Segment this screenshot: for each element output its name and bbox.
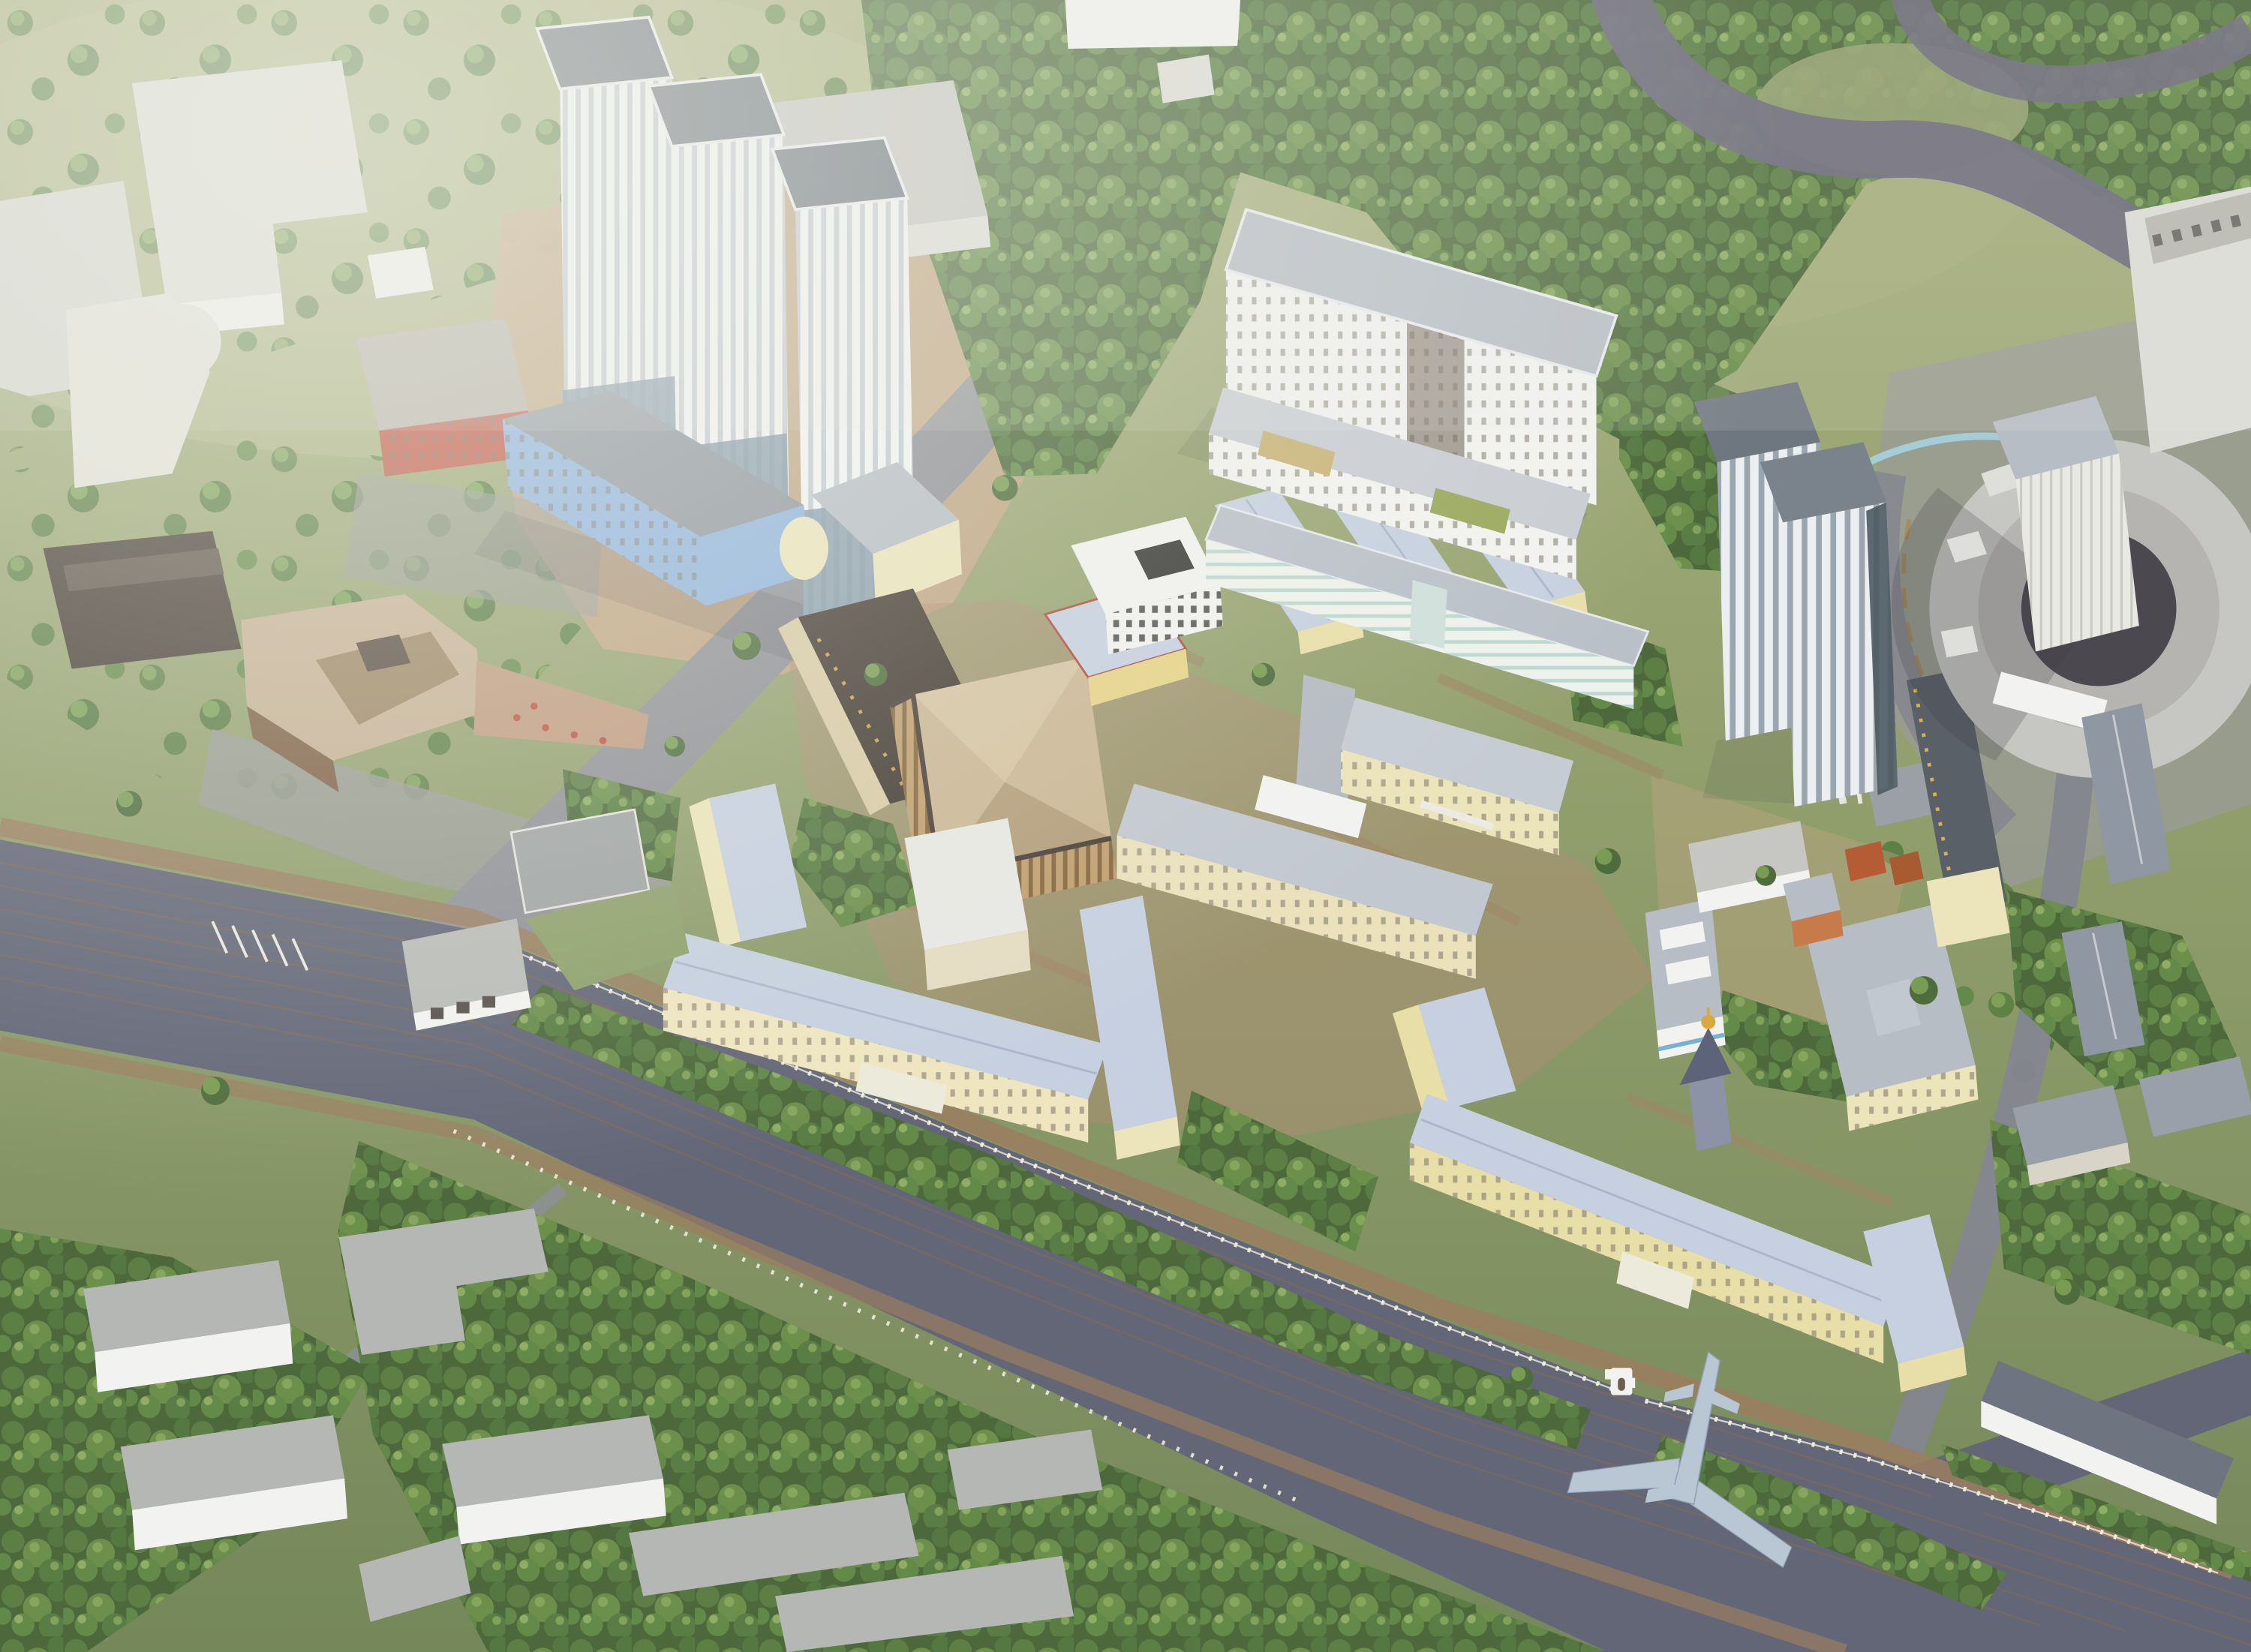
top-haze bbox=[0, 0, 2251, 431]
aerial-render bbox=[0, 0, 2251, 1652]
